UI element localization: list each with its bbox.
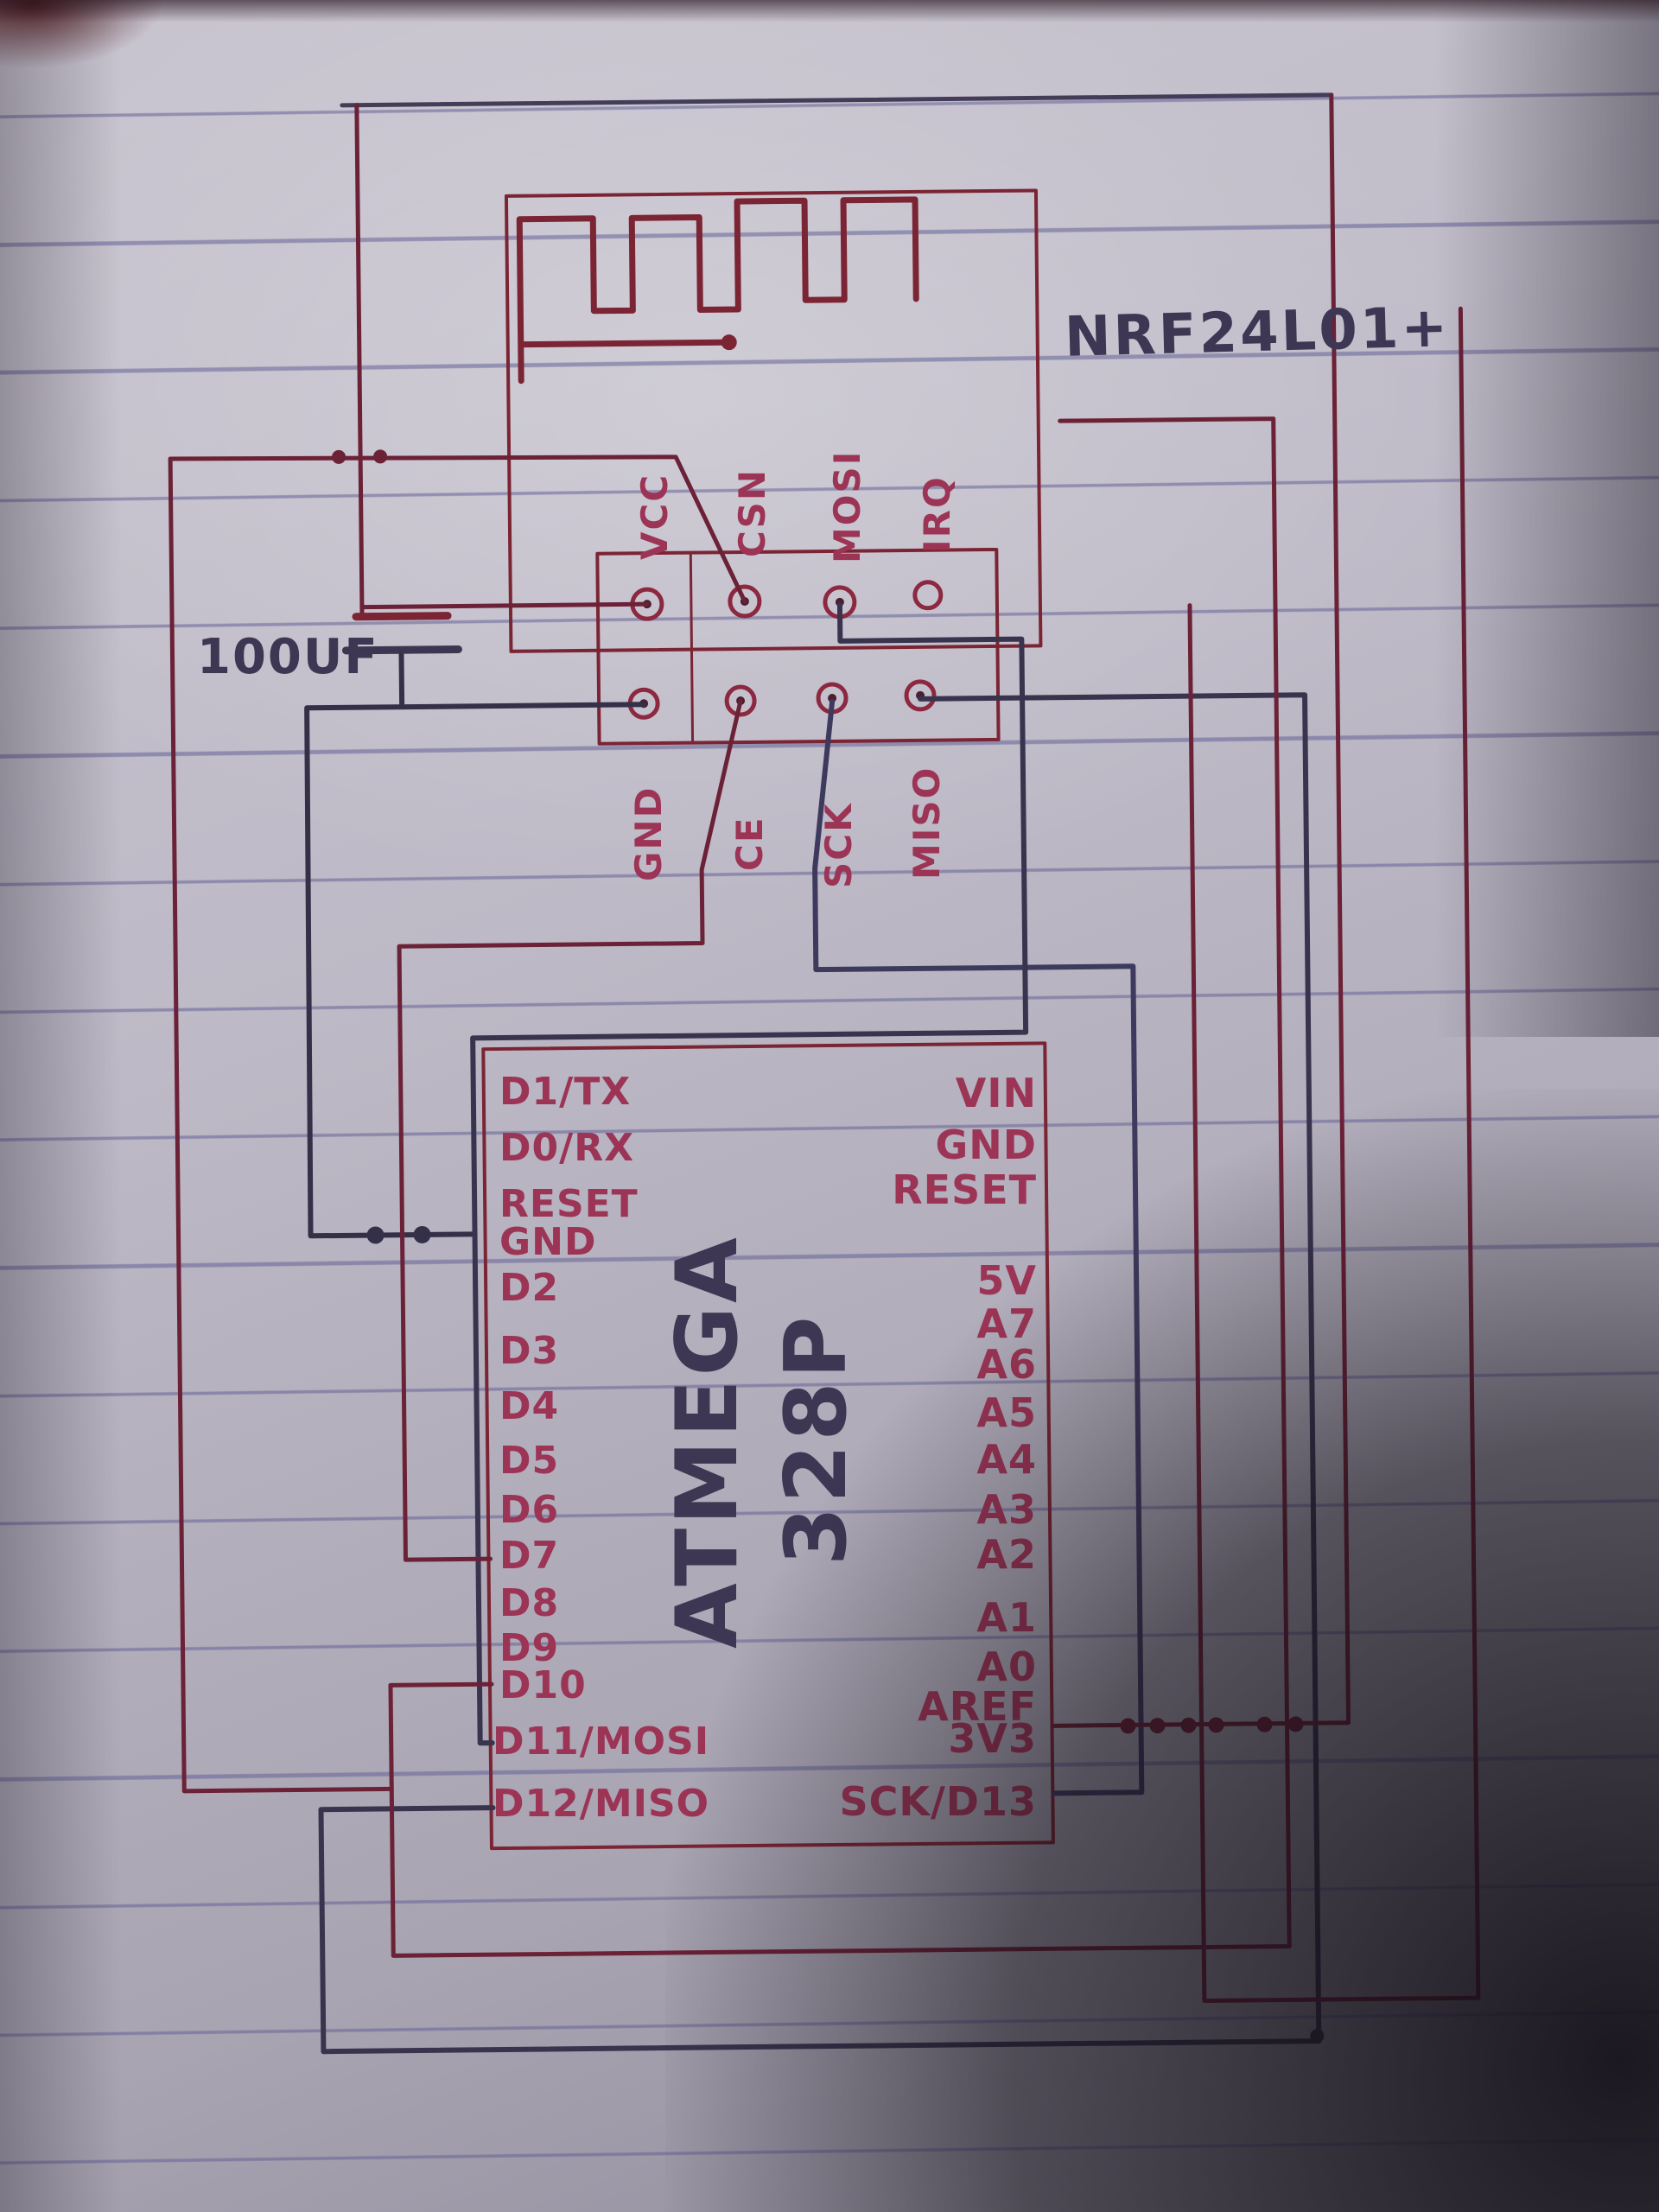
nrf-pin-label-ce: CE xyxy=(728,816,771,871)
top-edge-shadow xyxy=(0,0,1659,22)
nrf-pin-label-miso: MISO xyxy=(906,766,948,880)
antenna-icon xyxy=(519,200,917,381)
wire-csn-d10-stub xyxy=(391,1684,492,1685)
wire-cap-vcc-rail xyxy=(357,105,362,615)
nrf-pin-centers xyxy=(639,595,925,708)
nrf-pin-label-vcc: VCC xyxy=(633,474,676,560)
wire-cap-gnd-lead xyxy=(401,651,402,707)
wire-top-rail xyxy=(342,95,1332,105)
capacitor-value-label: 100UF xyxy=(197,629,379,685)
nrf-pin-label-sck: SCK xyxy=(817,802,860,888)
nrf-pin-header-divider xyxy=(690,553,692,743)
nrf-module-box xyxy=(506,190,1040,651)
nrf-pin-label-gnd: GND xyxy=(627,786,670,882)
nrf-module-title: NRF24L01+ xyxy=(1064,296,1451,370)
paper-shadow-left xyxy=(0,0,121,2212)
finger-shadow xyxy=(665,1089,1659,2212)
paper-shadow-right xyxy=(1434,0,1659,1037)
nrf-pin-irq xyxy=(915,582,941,608)
notebook-page: NRF24L01+ 100UF VCC CSN MOSI IRQ GND CE … xyxy=(0,0,1659,2212)
antenna-feed-line xyxy=(524,342,723,344)
nrf-pin-label-mosi: MOSI xyxy=(826,450,868,563)
nrf-pin-label-irq: IRQ xyxy=(916,475,958,553)
capacitor-plate-top xyxy=(356,616,448,617)
wire-vcc xyxy=(362,604,647,607)
antenna-feed-dot xyxy=(721,334,737,350)
nrf-pin-label-csn: CSN xyxy=(731,468,773,557)
